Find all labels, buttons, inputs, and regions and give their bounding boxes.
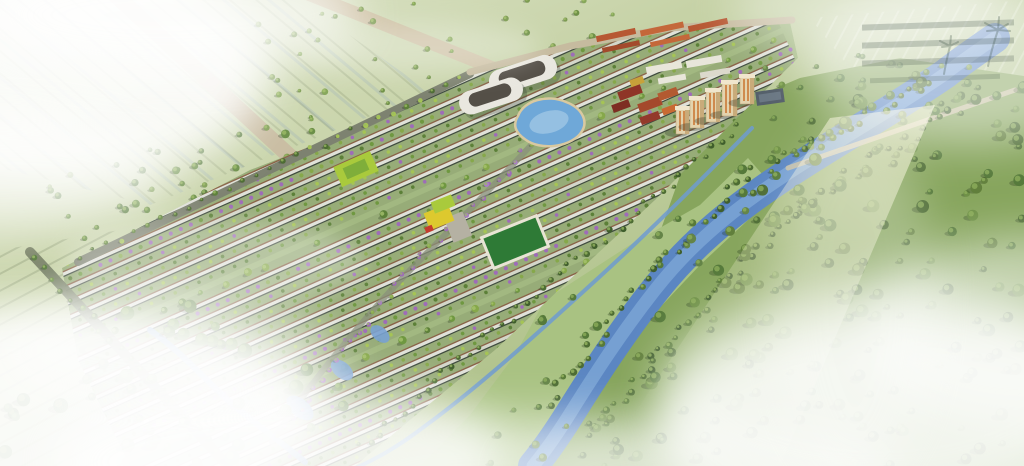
scene-svg [0, 0, 1024, 466]
aerial-masterplan-render [0, 0, 1024, 466]
